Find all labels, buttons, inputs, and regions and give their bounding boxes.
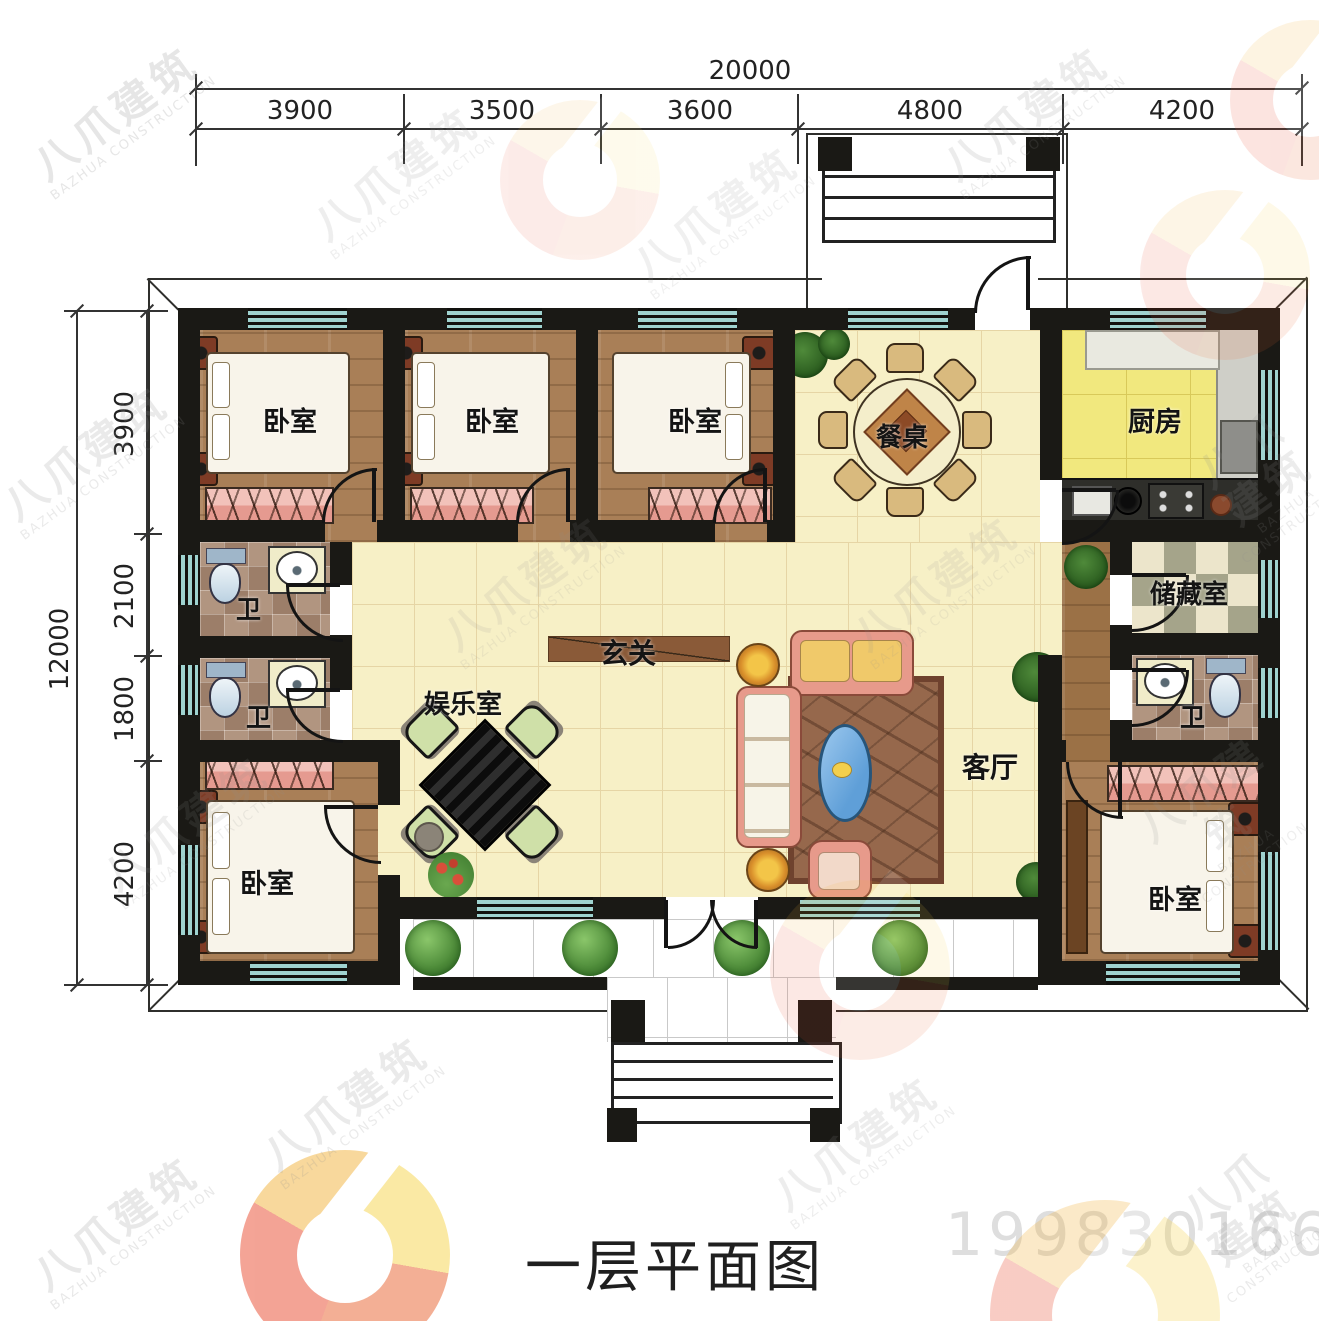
dim-left-seg2: 2100 (110, 546, 140, 646)
top-stairs-rail-right (1053, 171, 1056, 243)
dim-top-seg3: 3600 (650, 96, 750, 126)
top-stairs-rail-left (822, 171, 825, 243)
brand-logo-icon (1230, 20, 1319, 180)
pillow (212, 878, 230, 935)
window-bedroom4-left (178, 845, 200, 935)
sofa-cushion (800, 640, 850, 682)
sofa-cushions-column (744, 694, 790, 838)
passage-floor (1040, 542, 1062, 655)
stair-tread (614, 1078, 833, 1081)
shrub (872, 920, 928, 976)
brand-watermark: 八爪建筑BAZHUA CONSTRUCTION (251, 1027, 450, 1194)
dim-left-seg4: 4200 (110, 824, 140, 924)
dim-left-ext-top (64, 310, 168, 312)
pillow (1206, 820, 1224, 872)
side-table (736, 643, 780, 687)
sofa-cushion (852, 640, 902, 682)
wardrobe (1107, 765, 1261, 802)
room-label-bath3: 卫 (1180, 698, 1205, 734)
stair-tread (614, 1060, 833, 1063)
window-bath2 (178, 665, 200, 715)
wall-bath-right-b (330, 635, 352, 690)
wall-bed4-right-a (378, 762, 400, 805)
window-living-right (800, 897, 920, 919)
stool (414, 822, 444, 852)
room-label-bedroom1: 卧室 (263, 400, 317, 439)
window-bedroom5-bottom (1106, 961, 1240, 985)
brand-cn: 八爪建筑 (21, 37, 211, 193)
brand-logo-icon (240, 1150, 450, 1321)
porch-column-left (611, 1000, 645, 1042)
dim-top-seg5: 4200 (1132, 96, 1232, 126)
wall-baths-mid (178, 636, 330, 658)
dim-left-seg1: 3900 (110, 374, 140, 474)
window-bedroom4-bottom (250, 961, 347, 985)
kitchen-fridge (1220, 420, 1258, 474)
watermark-phone: 19983016688 (945, 1200, 1319, 1270)
side-table (746, 848, 790, 892)
window-bath3 (1258, 668, 1280, 718)
coffee-table-tray (832, 762, 852, 778)
wall-bath2-bed4 (178, 740, 400, 762)
entry-stairs (611, 1042, 842, 1124)
window-bath1 (178, 555, 200, 605)
wall-living-corridor (1038, 655, 1062, 762)
room-label-foyer: 玄关 (600, 632, 656, 672)
wall-bed3-dining (773, 330, 795, 542)
wall-bed5-top-b (1120, 740, 1280, 762)
armchair-cushion (818, 852, 860, 890)
window-kitchen-right (1258, 370, 1280, 460)
brand-watermark: 八爪建筑BAZHUA CONSTRUCTION (21, 1147, 220, 1314)
sink-basin (276, 551, 318, 587)
pillow (725, 414, 743, 460)
flower-shrub (428, 852, 474, 898)
room-label-entertainment: 娱乐室 (424, 684, 502, 721)
pillow (417, 362, 435, 408)
pillow (212, 812, 230, 869)
plant (818, 328, 850, 360)
room-label-bedroom5: 卧室 (1148, 878, 1202, 917)
stair-foot-right (810, 1108, 840, 1142)
veranda-edge-left (413, 977, 607, 990)
floor-plan-canvas: 卧室 卧室 卧室 餐桌 厨房 卫 卫 储藏室 卫 玄关 娱乐室 客厅 卧室 卧室… (0, 0, 1319, 1321)
wall-bath-right-a (330, 542, 352, 585)
dim-top-line1 (196, 88, 1302, 90)
window-kitchen-top (1110, 308, 1206, 330)
top-stairs-tread3 (822, 217, 1056, 220)
wall-under-bedrooms-d (767, 520, 795, 542)
toilet (206, 662, 244, 718)
dim-left-ext-bottom (64, 984, 168, 986)
window-bedroom1 (248, 308, 347, 330)
pillow (212, 414, 230, 460)
drawing-title: 一层平面图 (475, 1222, 875, 1303)
top-stairs-tread2 (822, 196, 1056, 199)
window-bedroom3 (638, 308, 737, 330)
dining-chair (886, 487, 924, 517)
porch-column-right (798, 1000, 832, 1042)
pillow (1206, 880, 1224, 932)
top-stairs-tread4 (822, 240, 1056, 243)
tv-cabinet (1066, 800, 1088, 954)
wall-under-bedrooms-a (178, 520, 325, 542)
dining-chair (962, 411, 992, 449)
dim-left-total: 12000 (45, 599, 75, 699)
room-label-kitchen: 厨房 (1128, 400, 1182, 439)
dining-chair (886, 343, 924, 373)
wall-bed2-bed3 (576, 330, 598, 542)
room-label-bedroom3: 卧室 (668, 400, 722, 439)
wall-dining-kitchen (1040, 330, 1062, 480)
dim-top-seg2: 3500 (452, 96, 552, 126)
dim-top-total: 20000 (700, 56, 800, 86)
shrub (405, 920, 461, 976)
room-label-dining-table: 餐桌 (876, 417, 928, 454)
wall-storage-left-c (1110, 720, 1132, 762)
kitchen-stove (1148, 483, 1204, 519)
pillow (725, 362, 743, 408)
pillow (212, 362, 230, 408)
wardrobe (205, 487, 334, 524)
dim-left-seg3: 1800 (110, 659, 140, 759)
brand-watermark: 八爪建筑BAZHUA CONSTRUCTION (21, 37, 220, 204)
room-label-bath2: 卫 (246, 698, 271, 734)
wall-under-bedrooms-c (570, 520, 715, 542)
stair-foot-left (607, 1108, 637, 1142)
window-living-left (477, 897, 593, 919)
dim-top-line2 (196, 128, 1302, 130)
stair-tread (614, 1096, 833, 1099)
window-dining (848, 308, 948, 330)
wall-storage-bath3 (1110, 633, 1280, 655)
room-label-living: 客厅 (962, 746, 1018, 786)
wall-storage-left-a (1110, 542, 1132, 575)
dim-left-line1 (76, 310, 78, 986)
pillow (417, 414, 435, 460)
kitchen-bowl (1210, 494, 1232, 516)
window-storage (1258, 560, 1280, 618)
dining-chair (818, 411, 848, 449)
top-porch-column-left (818, 137, 852, 171)
room-label-bath1: 卫 (236, 590, 261, 626)
dim-top-seg4: 4800 (880, 96, 980, 126)
room-label-storage: 储藏室 (1150, 574, 1228, 611)
room-label-bedroom4: 卧室 (240, 862, 294, 901)
wall-under-bedrooms-b (377, 520, 518, 542)
top-stairs-tread1 (822, 175, 1056, 178)
shrub (562, 920, 618, 976)
dim-top-seg1: 3900 (250, 96, 350, 126)
kitchen-counter-top (1085, 330, 1220, 370)
room-label-bedroom2: 卧室 (465, 400, 519, 439)
window-bedroom5-right (1258, 852, 1280, 950)
veranda-edge-right (836, 977, 1038, 990)
corridor-plant (1064, 545, 1108, 589)
top-porch-column-right (1026, 137, 1060, 171)
wall-bed1-bed2 (383, 330, 405, 542)
wall-bed5-left (1038, 762, 1062, 961)
window-bedroom2 (447, 308, 542, 330)
dim-left-line2 (146, 310, 148, 986)
toilet (1206, 658, 1244, 718)
